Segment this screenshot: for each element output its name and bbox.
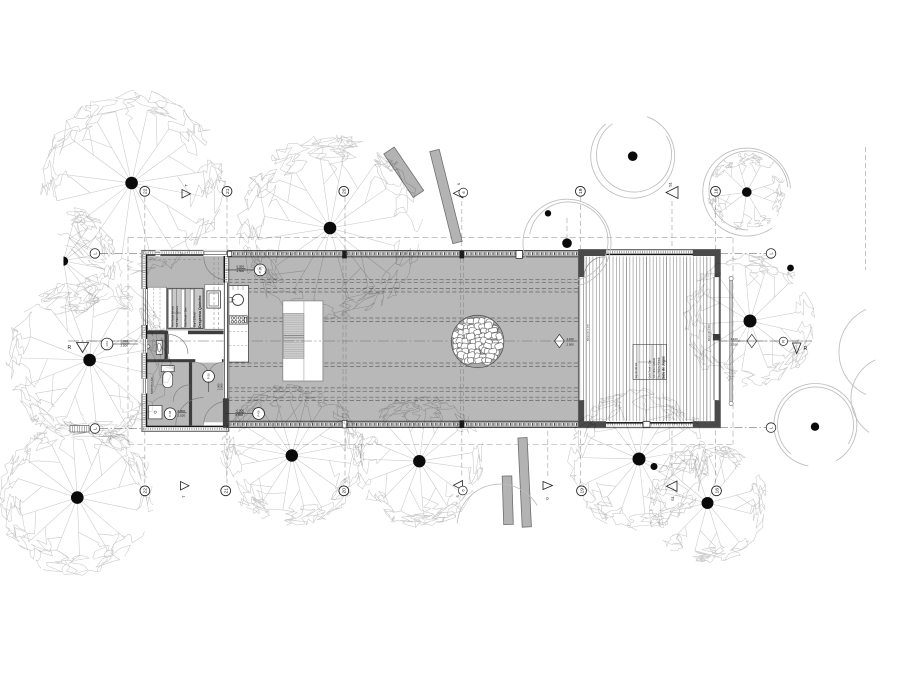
svg-text:18: 18 xyxy=(713,188,719,194)
svg-text:Antepecho 1.200: Antepecho 1.200 xyxy=(587,324,590,341)
svg-text:Sob Tabla Cepillada: Sob Tabla Cepillada xyxy=(654,357,656,378)
svg-text:20: 20 xyxy=(342,188,348,194)
svg-text:Sala de Jogos: Sala de Jogos xyxy=(662,356,666,379)
svg-text:2.500: 2.500 xyxy=(121,344,129,348)
svg-text:0.000: 0.000 xyxy=(237,265,245,269)
svg-text:2.000: 2.000 xyxy=(567,342,575,346)
svg-text:20: 20 xyxy=(342,488,348,494)
svg-text:21: 21 xyxy=(224,488,230,494)
svg-text:2.000: 2.000 xyxy=(220,383,224,390)
svg-text:P-06: P-06 xyxy=(257,410,261,416)
svg-text:Sob Tabla Cepillada: Sob Tabla Cepillada xyxy=(176,305,179,327)
svg-text:21: 21 xyxy=(225,188,231,194)
svg-text:2.100: 2.100 xyxy=(178,413,186,417)
svg-text:19: 19 xyxy=(579,488,585,494)
svg-text:Sup 7.278 m2: Sup 7.278 m2 xyxy=(194,311,197,327)
svg-text:2.500: 2.500 xyxy=(237,269,245,273)
svg-text:Cielo Tyvek + Zinc: Cielo Tyvek + Zinc xyxy=(185,307,188,327)
svg-text:4.100: 4.100 xyxy=(731,337,739,341)
svg-text:19: 19 xyxy=(578,188,584,194)
svg-text:R: R xyxy=(68,345,72,351)
svg-text:S1: S1 xyxy=(668,181,673,187)
svg-text:J-04: J-04 xyxy=(105,341,109,347)
svg-text:G: G xyxy=(545,497,550,500)
svg-text:Despensa Quincho: Despensa Quincho xyxy=(198,295,202,328)
svg-text:S1: S1 xyxy=(670,495,675,501)
svg-text:R: R xyxy=(804,346,808,352)
svg-text:Cielo Tyvek + Zinc: Cielo Tyvek + Zinc xyxy=(650,359,652,379)
svg-text:Piso Madera Afinado: Piso Madera Afinado xyxy=(658,357,661,379)
svg-text:R: R xyxy=(782,340,786,343)
svg-text:18: 18 xyxy=(714,488,720,494)
svg-text:22: 22 xyxy=(143,188,149,194)
svg-text:P-26: P-26 xyxy=(207,373,211,379)
svg-text:Piso Radier Afinado: Piso Radier Afinado xyxy=(172,305,175,327)
svg-text:22: 22 xyxy=(143,488,149,494)
svg-text:0.800: 0.800 xyxy=(178,409,186,413)
svg-text:P-08: P-08 xyxy=(168,410,172,416)
svg-text:4.100: 4.100 xyxy=(567,337,575,341)
svg-text:Sup 32.160 m2: Sup 32.160 m2 xyxy=(636,362,638,378)
